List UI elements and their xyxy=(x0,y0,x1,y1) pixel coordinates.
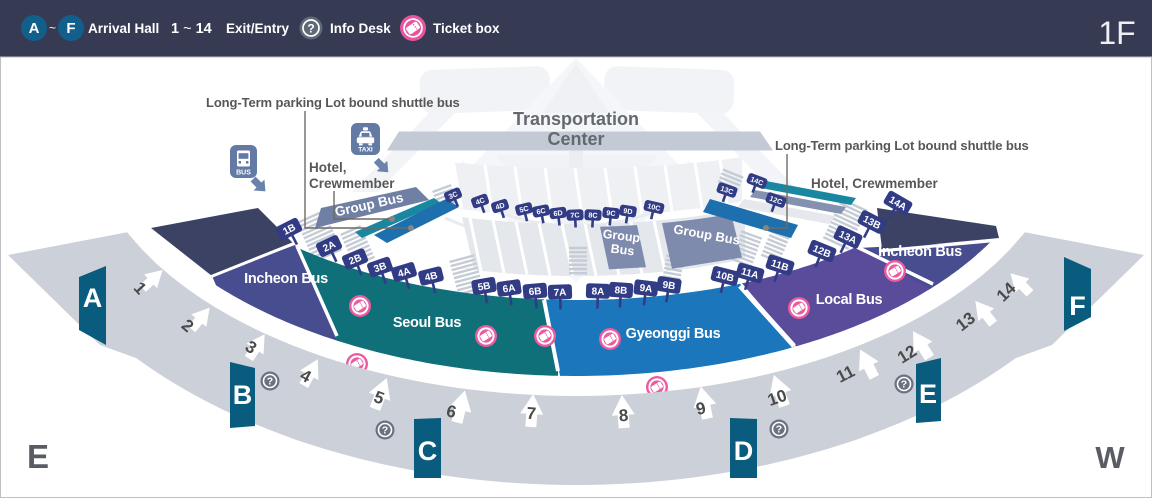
svg-text:9B: 9B xyxy=(662,280,676,293)
svg-text:E: E xyxy=(919,379,937,409)
svg-text:Center: Center xyxy=(547,129,604,149)
svg-text:7: 7 xyxy=(526,404,537,424)
svg-text:Long-Term parking Lot bound sh: Long-Term parking Lot bound shuttle bus xyxy=(206,95,460,110)
svg-text:A: A xyxy=(29,20,40,37)
svg-text:F: F xyxy=(66,20,75,37)
svg-text:Ticket box: Ticket box xyxy=(433,21,500,36)
svg-text:E: E xyxy=(27,438,49,475)
svg-text:9A: 9A xyxy=(639,283,653,295)
svg-text:6C: 6C xyxy=(536,206,547,217)
svg-text:8: 8 xyxy=(618,406,629,426)
svg-text:Transportation: Transportation xyxy=(513,109,639,129)
svg-text:8B: 8B xyxy=(614,285,628,297)
svg-text:Seoul Bus: Seoul Bus xyxy=(393,315,461,331)
svg-text:?: ? xyxy=(382,425,388,437)
svg-text:Info Desk: Info Desk xyxy=(330,21,391,36)
svg-text:7C: 7C xyxy=(570,210,580,219)
svg-text:?: ? xyxy=(267,376,273,388)
svg-text:~: ~ xyxy=(49,21,56,35)
svg-text:9D: 9D xyxy=(623,206,633,216)
svg-text:1 ~ 14: 1 ~ 14 xyxy=(171,21,212,37)
svg-text:Bus: Bus xyxy=(610,242,635,259)
svg-text:BUS: BUS xyxy=(236,170,251,177)
svg-text:Arrival Hall: Arrival Hall xyxy=(88,21,159,36)
svg-text:Crewmember: Crewmember xyxy=(309,176,395,191)
svg-text:Local Bus: Local Bus xyxy=(816,292,883,308)
svg-text:F: F xyxy=(1069,291,1086,321)
svg-text:W: W xyxy=(1095,440,1125,475)
svg-text:B: B xyxy=(233,380,253,410)
svg-text:TAXI: TAXI xyxy=(358,147,373,154)
svg-text:C: C xyxy=(418,436,438,466)
svg-text:?: ? xyxy=(776,424,782,436)
svg-text:D: D xyxy=(734,436,754,466)
svg-text:8A: 8A xyxy=(591,286,604,297)
svg-text:9C: 9C xyxy=(606,208,616,218)
svg-text:7A: 7A xyxy=(553,287,566,298)
svg-text:?: ? xyxy=(307,22,314,36)
svg-text:6D: 6D xyxy=(553,208,563,218)
svg-text:A: A xyxy=(83,283,103,313)
svg-text:?: ? xyxy=(901,379,907,391)
svg-text:8C: 8C xyxy=(588,210,598,219)
svg-text:5B: 5B xyxy=(477,281,492,294)
svg-text:Long-Term parking Lot bound sh: Long-Term parking Lot bound shuttle bus xyxy=(775,138,1029,153)
svg-text:6A: 6A xyxy=(502,283,516,296)
svg-text:Incheon Bus: Incheon Bus xyxy=(878,244,962,260)
svg-text:Incheon Bus: Incheon Bus xyxy=(244,271,328,287)
svg-text:Hotel, Crewmember: Hotel, Crewmember xyxy=(811,176,939,191)
svg-text:Exit/Entry: Exit/Entry xyxy=(226,21,290,36)
svg-text:6B: 6B xyxy=(528,286,542,298)
svg-text:Hotel,: Hotel, xyxy=(309,160,347,175)
svg-text:Gyeonggi Bus: Gyeonggi Bus xyxy=(626,326,721,342)
svg-text:1F: 1F xyxy=(1098,15,1135,51)
